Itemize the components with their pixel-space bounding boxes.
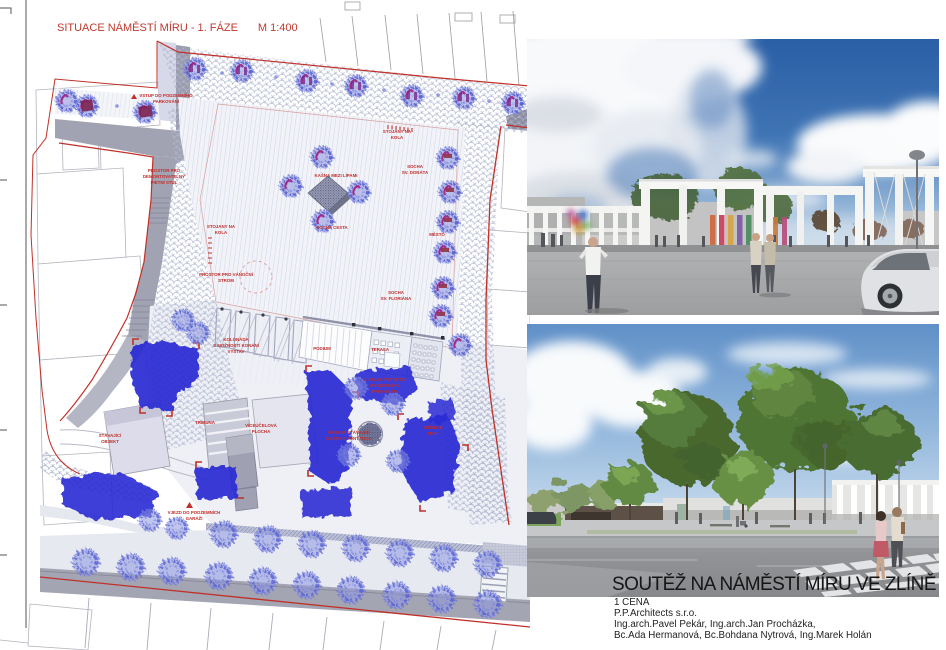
svg-text:PODZEMNÍHO: PODZEMNÍHO [370,383,400,388]
svg-text:SV. FLORIÁNA: SV. FLORIÁNA [381,296,412,301]
svg-text:PARKOVÁNÍ: PARKOVÁNÍ [153,99,180,104]
svg-text:KOLA: KOLA [391,135,404,140]
svg-text:DEMONTOVATELNÝ: DEMONTOVATELNÝ [143,174,185,179]
svg-text:STROM: STROM [218,278,234,283]
svg-text:STOJANY NA: STOJANY NA [207,224,236,229]
svg-text:SOCHA CESTA: SOCHA CESTA [316,225,348,230]
svg-text:VSTUP DO PODZEMNÍHO: VSTUP DO PODZEMNÍHO [139,93,193,98]
svg-text:S MOŽNOSTÍ KONÁNÍ: S MOŽNOSTÍ KONÁNÍ [213,343,260,348]
svg-text:KOLONÁDA: KOLONÁDA [223,337,249,342]
svg-text:TRHY: TRHY [427,431,439,436]
svg-text:PROSTOR PRO: PROSTOR PRO [148,168,181,173]
svg-text:VÍCEÚČELOVÁ: VÍCEÚČELOVÁ [245,423,278,428]
svg-text:SV. DONÁTA: SV. DONÁTA [402,170,429,175]
svg-text:KOLA: KOLA [215,230,228,235]
svg-text:TRIBUNA: TRIBUNA [195,420,216,425]
svg-text:1. ETAPA VSTUP DO: 1. ETAPA VSTUP DO [364,377,407,382]
svg-text:TERASA: TERASA [371,347,390,352]
svg-text:KAŠNA MEZI LÍPAMI: KAŠNA MEZI LÍPAMI [315,173,358,178]
svg-text:SOCHA: SOCHA [407,164,424,169]
svg-text:KAŠNY S FONTÁNOU: KAŠNY S FONTÁNOU [326,436,372,441]
svg-text:SOCHA: SOCHA [388,290,405,295]
svg-text:GARÁŽÍ: GARÁŽÍ [186,516,204,521]
svg-text:PARKOVÁNÍ: PARKOVÁNÍ [372,389,399,394]
svg-text:VJEZD DO PODZEMNÍCH: VJEZD DO PODZEMNÍCH [168,510,221,515]
svg-text:PLOCHA: PLOCHA [252,429,271,434]
svg-text:ÚPRAVA STÁVAJÍCÍ: ÚPRAVA STÁVAJÍCÍ [328,430,370,435]
svg-text:PIETNÍ STŮL: PIETNÍ STŮL [151,180,178,185]
svg-text:OBJEKT: OBJEKT [101,439,119,444]
svg-text:MĚSTO: MĚSTO [429,232,445,237]
svg-text:TRŽNICE: TRŽNICE [423,425,442,430]
svg-text:STÁVAJÍCÍ: STÁVAJÍCÍ [99,433,122,438]
svg-text:PROSTOR PRO VÁNOČNÍ: PROSTOR PRO VÁNOČNÍ [199,272,254,277]
svg-text:PODIUM: PODIUM [313,346,331,351]
svg-text:VÝSTAV: VÝSTAV [228,349,245,354]
